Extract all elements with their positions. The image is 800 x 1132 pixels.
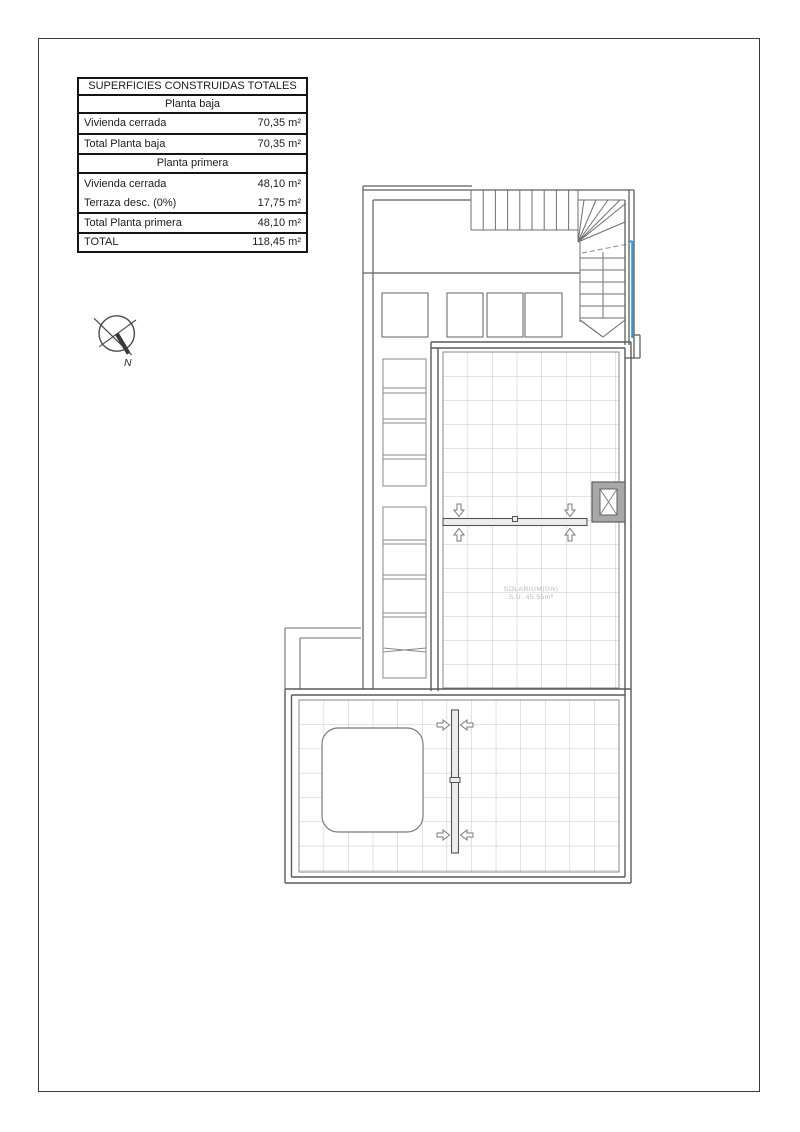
table-section-planta-primera: Planta primera — [79, 155, 306, 174]
section-label: Planta primera — [157, 158, 229, 169]
row-label: Vivienda cerrada — [84, 118, 258, 129]
row-label: Vivienda cerrada — [84, 179, 258, 190]
table-row: Total Planta primera 48,10 m² — [79, 214, 306, 234]
bottom-left-step — [285, 628, 361, 689]
surfaces-table: SUPERFICIES CONSTRUIDAS TOTALES Planta b… — [77, 77, 308, 253]
pergola-slats — [383, 359, 426, 678]
winder-stairs — [578, 200, 628, 253]
floor-plan: SOLARIUM(0%) S.U. 45.55m² — [278, 180, 650, 890]
solarium-area-label: S.U. 45.55m² — [509, 594, 554, 601]
row-label: TOTAL — [84, 237, 252, 248]
right-stair-run — [580, 242, 625, 322]
chimney-x-icon — [592, 482, 625, 522]
row-value: 70,35 m² — [258, 118, 301, 129]
north-label: N — [124, 357, 132, 369]
row-label: Total Planta baja — [84, 139, 258, 150]
row-value: 70,35 m² — [258, 139, 301, 150]
north-arrow-icon: N — [88, 308, 148, 376]
skylight-rounded — [322, 728, 423, 832]
solarium-label: SOLARIUM(0%) — [504, 586, 559, 593]
plan-sheet: SUPERFICIES CONSTRUIDAS TOTALES Planta b… — [0, 0, 800, 1132]
table-row: Vivienda cerrada 70,35 m² — [79, 114, 306, 135]
table-row: Vivienda cerrada 48,10 m² — [79, 174, 306, 194]
table-title: SUPERFICIES CONSTRUIDAS TOTALES — [79, 79, 306, 96]
table-row-total: TOTAL 118,45 m² — [79, 234, 306, 251]
roof-boxes — [382, 293, 562, 337]
row-label: Terraza desc. (0%) — [84, 198, 258, 209]
section-label: Planta baja — [165, 99, 220, 110]
upper-stair-treads — [471, 190, 578, 242]
row-label: Total Planta primera — [84, 218, 258, 229]
table-section-planta-baja: Planta baja — [79, 96, 306, 114]
left-walls — [363, 273, 373, 689]
table-row: Total Planta baja 70,35 m² — [79, 135, 306, 155]
terrace-beam — [450, 710, 460, 853]
stair-direction-arrow — [580, 320, 625, 337]
table-row: Terraza desc. (0%) 17,75 m² — [79, 194, 306, 214]
table-title-text: SUPERFICIES CONSTRUIDAS TOTALES — [88, 81, 296, 92]
